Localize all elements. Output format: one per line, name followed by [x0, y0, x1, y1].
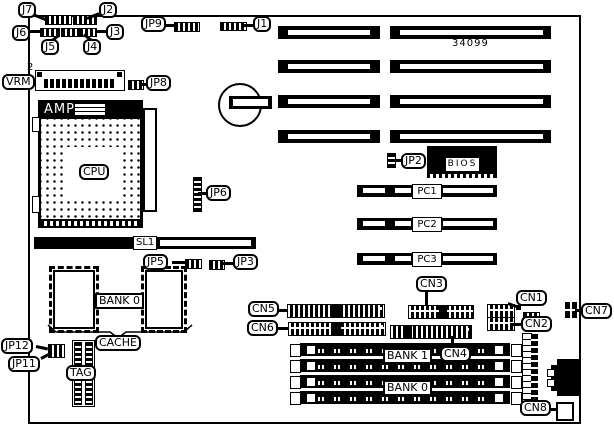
label-jp6: JP6 [206, 185, 231, 201]
cn7-gap-v [570, 302, 572, 318]
pci-slot-pc1-label: PC1 [412, 184, 442, 199]
pci-slot-pc2: PC2 [357, 218, 497, 230]
cpu-socket-clip-bottom [32, 196, 40, 213]
battery-clip-slot [233, 99, 268, 106]
label-vrm: VRM [2, 74, 35, 90]
cn8-connector [556, 402, 574, 421]
jumper-block-j5 [61, 28, 79, 37]
label-j2: J2 [99, 2, 117, 18]
cn3-header [408, 305, 474, 319]
isa-slot-3-right [390, 95, 551, 108]
label-cn8: CN8 [520, 400, 551, 416]
pci-slot-pc3-label: PC3 [412, 252, 442, 267]
isa-slot-3-left [278, 95, 380, 108]
vrm-key-right [117, 72, 122, 77]
label-cn4: CN4 [440, 346, 471, 362]
label-jp9: JP9 [141, 16, 166, 32]
board-part-number: 34099 [452, 38, 489, 49]
label-jp3: JP3 [233, 254, 258, 270]
cpu-socket-lever [143, 108, 157, 212]
memory-bank0-label: BANK 0 [383, 380, 432, 396]
vrm-key-left [37, 72, 42, 77]
leader-cn3 [425, 290, 428, 306]
sl1-label: SL1 [133, 236, 157, 250]
memory-bank1-label: BANK 1 [383, 348, 432, 364]
label-jp8: JP8 [146, 75, 171, 91]
simm1-end-right [511, 344, 522, 357]
label-cn6: CN6 [247, 320, 278, 336]
vrm-connector [35, 70, 125, 91]
cache-chip-left [53, 270, 95, 329]
motherboard-layout-diagram: 34099 J7 J2 J6 J5 J4 J3 JP9 J1 2 VRM JP8… [0, 0, 614, 428]
leader-cn6 [276, 327, 289, 330]
keyboard-connector-notch-1 [547, 369, 555, 377]
leader-j6 [29, 30, 41, 33]
label-jp2: JP2 [401, 153, 426, 169]
label-j7: J7 [18, 2, 36, 18]
pci-slot-pc3: PC3 [357, 253, 497, 265]
label-tag: TAG [66, 365, 96, 381]
isa-slot-2-right [390, 60, 551, 73]
power-connector-pins [531, 334, 538, 403]
leader-jp5 [172, 261, 185, 264]
label-j3: J3 [106, 24, 124, 40]
bios-pin-row [430, 174, 494, 178]
jumper-jp5 [185, 259, 202, 269]
label-j1: J1 [253, 16, 271, 32]
isa-slot-4-right [390, 130, 551, 143]
vrm-pin2-marker: 2 [27, 62, 33, 73]
pci-slot-pc2-label: PC2 [412, 217, 442, 232]
label-jp11: JP11 [8, 356, 40, 372]
sl1-slot-stripe [160, 240, 251, 246]
cpu-socket-logo-box [75, 104, 105, 115]
label-cn5: CN5 [248, 301, 279, 317]
cache-bank0-label: BANK 0 [95, 293, 144, 309]
label-cn3: CN3 [416, 276, 447, 292]
label-jp5: JP5 [143, 254, 168, 270]
cpu-die-label: CPU [79, 164, 109, 180]
isa-slot-2-left [278, 60, 380, 73]
isa-slot-4-left [278, 130, 380, 143]
jumper-jp11-jp12 [48, 344, 65, 358]
simm2-end-right [511, 360, 522, 373]
cn5-header [287, 304, 385, 318]
label-jp12: JP12 [1, 338, 33, 354]
pci-slot-pc1: PC1 [357, 185, 497, 197]
label-j6: J6 [12, 25, 30, 41]
cache-chip-right [145, 270, 183, 329]
vrm-pin-teeth [44, 79, 115, 88]
cn6-header [288, 322, 386, 336]
jumper-block-j7 [45, 15, 72, 25]
cpu-socket-clip-top [32, 117, 40, 132]
isa-slot-1-left [278, 26, 380, 39]
power-connector [522, 333, 539, 404]
leader-jp9 [166, 24, 175, 27]
label-cn7: CN7 [581, 303, 612, 319]
label-cache: CACHE [95, 335, 141, 351]
label-j5: J5 [41, 39, 59, 55]
battery-clip [229, 96, 272, 109]
jumper-jp9 [174, 22, 200, 32]
keyboard-connector-notch-2 [547, 379, 555, 387]
label-j4: J4 [83, 39, 101, 55]
label-cn2: CN2 [521, 316, 552, 332]
bios-chip: BIOS [427, 146, 497, 178]
simm3-end-right [511, 376, 522, 389]
cpu-pin-teeth-bottom [44, 221, 137, 226]
keyboard-connector [551, 359, 579, 396]
label-cn1: CN1 [516, 290, 547, 306]
isa-slot-1-right [390, 26, 551, 39]
bios-label-box: BIOS [445, 157, 480, 172]
cn4-header [390, 325, 472, 339]
cpu-socket-brand: AMP [44, 102, 75, 117]
keyboard-connector-body [557, 359, 579, 396]
